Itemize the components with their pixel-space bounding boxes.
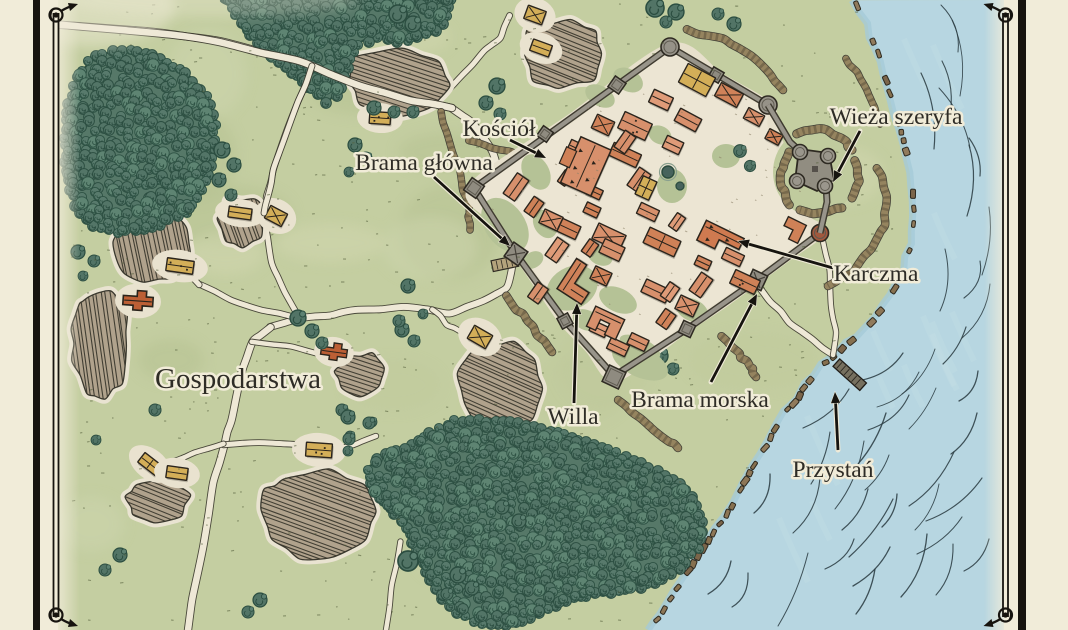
svg-text:Przystań: Przystań xyxy=(793,457,874,483)
svg-text:Brama morska: Brama morska xyxy=(631,387,769,413)
svg-text:Gospodarstwa: Gospodarstwa xyxy=(155,363,321,395)
svg-text:Willa: Willa xyxy=(547,404,599,430)
svg-text:Karczma: Karczma xyxy=(834,261,919,287)
svg-text:Wieża szeryfa: Wieża szeryfa xyxy=(830,104,963,130)
svg-text:Brama główna: Brama główna xyxy=(355,150,493,176)
svg-text:Kościół: Kościół xyxy=(462,116,536,142)
